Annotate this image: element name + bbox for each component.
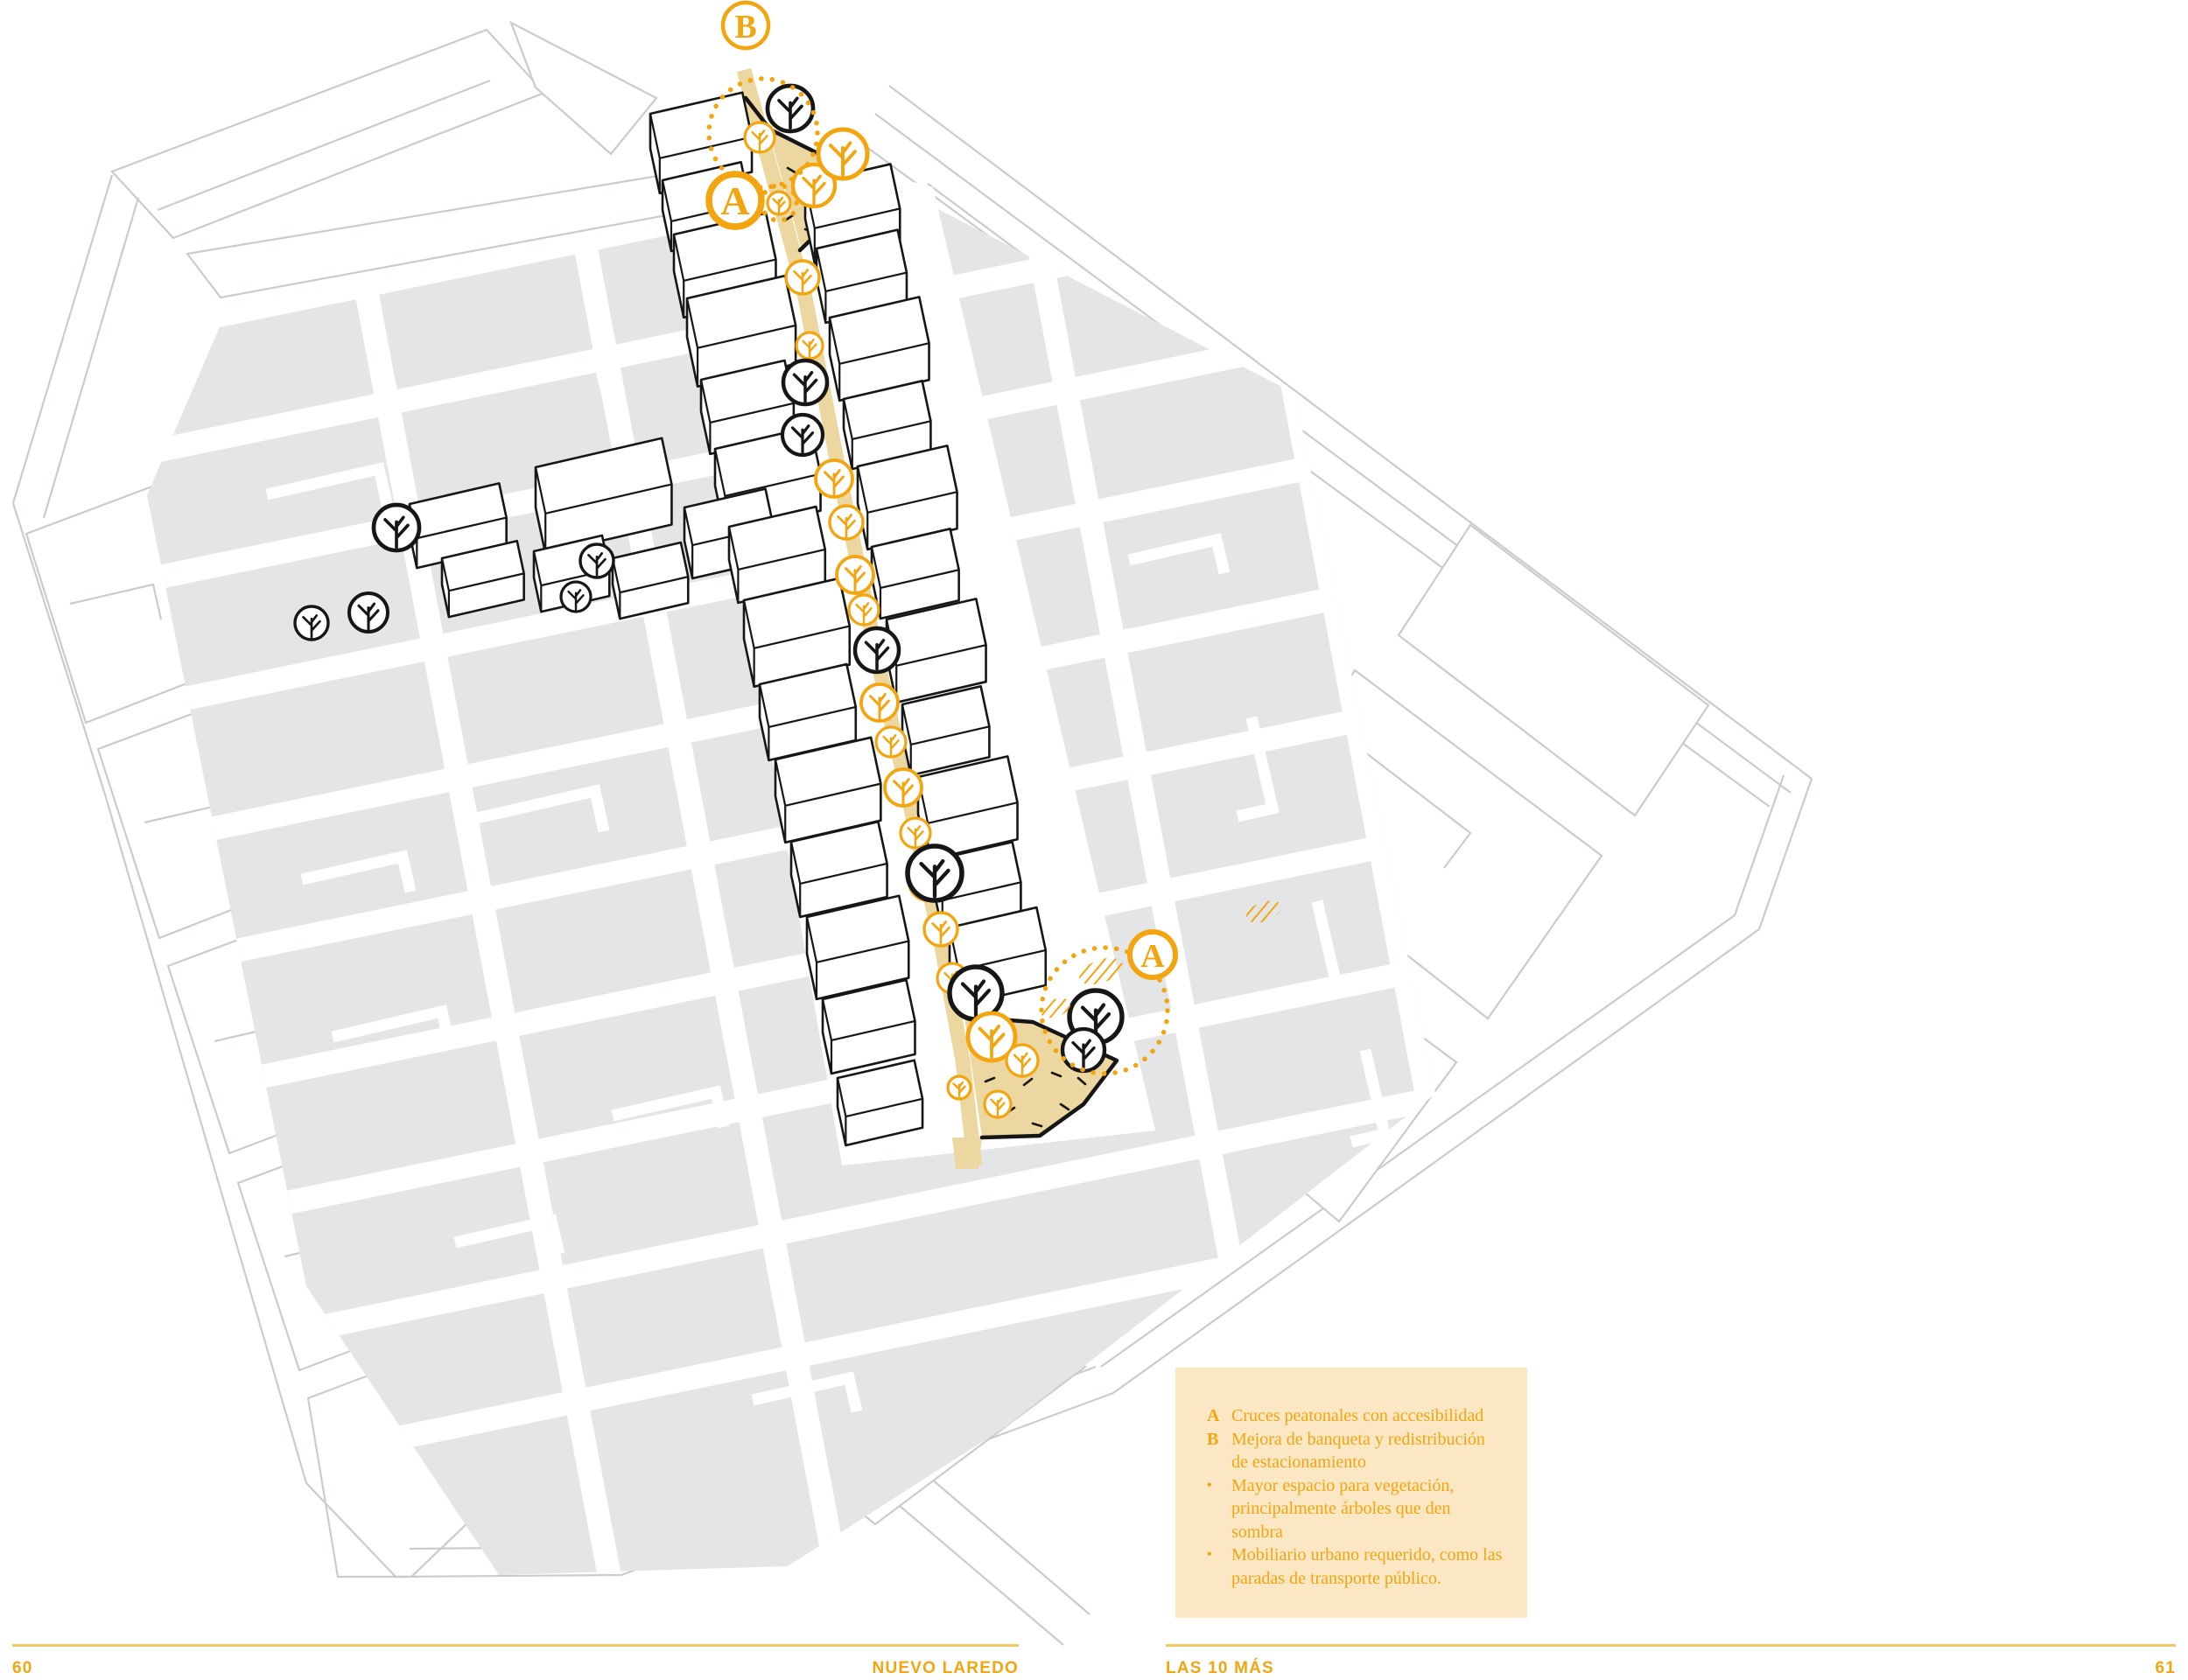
proposed-tree-icon <box>985 1091 1011 1117</box>
existing-tree-icon <box>349 593 388 632</box>
legend-item: • Mayor espacio para vegetación, princip… <box>1207 1474 1503 1544</box>
proposed-tree-icon <box>830 506 863 539</box>
proposed-tree-icon <box>816 460 852 497</box>
proposed-tree-icon <box>876 727 906 757</box>
existing-tree-icon <box>768 86 813 131</box>
proposed-tree-icon <box>924 913 957 946</box>
legend-key-a: A <box>1207 1404 1231 1428</box>
page-number-right: 61 <box>2155 1659 2176 1678</box>
proposed-tree-icon <box>901 818 930 848</box>
existing-tree-icon <box>855 628 899 672</box>
proposed-tree-icon <box>837 556 873 593</box>
running-title-left: NUEVO LAREDO <box>873 1659 1019 1678</box>
footer-rule-right-page <box>1166 1644 2176 1647</box>
legend-item-text: Mobiliario urbano requerido, como las pa… <box>1231 1543 1503 1590</box>
book-spread: B A A A Cruces peatonales con accesibili… <box>0 0 2188 1680</box>
proposed-tree-icon <box>885 769 922 806</box>
marker-a-label: A <box>720 178 749 223</box>
proposed-tree-icon <box>786 261 819 294</box>
marker-b-label: B <box>734 9 756 45</box>
legend-item: • Mobiliario urbano requerido, como las … <box>1207 1543 1503 1590</box>
urban-axonometric-map: B A A <box>0 0 2188 1680</box>
existing-tree-icon <box>374 505 419 550</box>
marker-a-bottom: A <box>1130 932 1175 977</box>
legend-item: B Mejora de banqueta y redistribución de… <box>1207 1428 1503 1474</box>
legend-item-text: Mejora de banqueta y redistribución de e… <box>1231 1428 1503 1474</box>
legend-item-text: Mayor espacio para vegetación, principal… <box>1231 1474 1503 1544</box>
legend-box: A Cruces peatonales con accesibilidad B … <box>1175 1368 1527 1618</box>
legend-key-b: B <box>1207 1428 1231 1452</box>
existing-tree-icon <box>1062 1029 1105 1071</box>
running-title-right: LAS 10 MÁS <box>1166 1659 1274 1678</box>
existing-tree-icon <box>783 360 827 404</box>
existing-tree-icon <box>295 606 328 640</box>
proposed-tree-icon <box>1006 1045 1038 1076</box>
existing-tree-icon <box>782 415 823 455</box>
marker-b-top: B <box>723 3 768 48</box>
marker-a-top: A <box>709 174 761 227</box>
marker-a-label: A <box>1140 938 1165 975</box>
proposed-tree-icon <box>861 684 898 721</box>
existing-tree-icon <box>580 544 614 577</box>
existing-tree-icon <box>908 846 962 900</box>
proposed-tree-icon <box>768 192 790 214</box>
proposed-tree-icon <box>849 595 879 625</box>
footer-rule-left-page <box>12 1644 1019 1647</box>
legend-item-text: Cruces peatonales con accesibilidad <box>1231 1404 1483 1428</box>
page-number-left: 60 <box>12 1659 33 1678</box>
existing-tree-icon <box>561 582 591 612</box>
proposed-tree-icon <box>796 332 823 359</box>
legend-item: A Cruces peatonales con accesibilidad <box>1207 1404 1503 1428</box>
bullet-icon: • <box>1207 1474 1231 1498</box>
proposed-tree-icon <box>745 122 775 152</box>
proposed-tree-icon <box>948 1076 971 1099</box>
bullet-icon: • <box>1207 1543 1231 1567</box>
proposed-tree-icon <box>818 129 867 178</box>
